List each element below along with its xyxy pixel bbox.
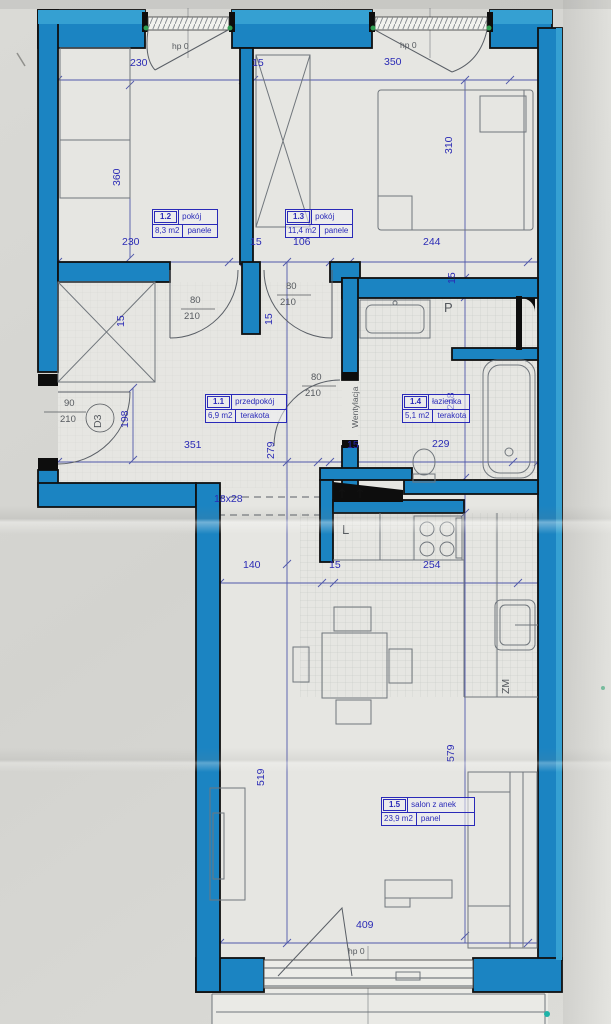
door-width-label: 80 [190, 296, 201, 306]
dimension-label: 409 [356, 920, 374, 931]
room-name: pokój [311, 210, 352, 224]
room-name: przedpokój [231, 395, 286, 409]
dimension-label: 229 [432, 439, 450, 450]
dimension-text-layer: 23015350hp 0hp 0360310230151062441515158… [0, 0, 611, 1024]
room-number: 1.3 [287, 211, 310, 223]
dimension-label: 351 [184, 440, 202, 451]
ventilation-label: Wentylacja [351, 387, 360, 428]
dimension-label: 230 [130, 58, 148, 69]
sink-label: ZM [501, 679, 512, 694]
room-label-1-1: 1.1przedpokój 6,9 m2terakota [205, 394, 287, 423]
room-floor: terakota [432, 410, 469, 422]
room-number: 1.4 [404, 396, 427, 408]
dimension-label: 198 [120, 410, 131, 428]
dimension-label: 350 [384, 57, 402, 68]
room-area: 8,3 m2 [153, 225, 182, 237]
room-label-1-3: 1.3pokój 11,4 m2panele [285, 209, 353, 238]
room-area: 23,9 m2 [382, 813, 416, 825]
room-label-1-2: 1.2pokój 8,3 m2panele [152, 209, 218, 238]
room-name: łazienka [428, 395, 469, 409]
dimension-label: 140 [243, 560, 261, 571]
dimension-label: 15 [252, 58, 264, 69]
floor-plan-photo: 23015350hp 0hp 0360310230151062441515158… [0, 0, 611, 1024]
door-symbol-label: D3 [93, 415, 104, 428]
room-floor: panele [319, 225, 352, 237]
room-number: 1.5 [383, 799, 406, 811]
dimension-label: 579 [446, 744, 457, 762]
dimension-label: 15 [329, 560, 341, 571]
room-name: pokój [178, 210, 217, 224]
entry-door-width-label: 90 [64, 399, 75, 409]
washing-machine-label: P [444, 301, 453, 314]
door-width-label: 80 [286, 282, 297, 292]
room-floor: panele [182, 225, 217, 237]
dimension-label: 15 [116, 315, 127, 327]
door-width-label: 80 [311, 373, 322, 383]
dimension-label: 360 [112, 168, 123, 186]
dimension-label: 254 [423, 560, 441, 571]
dimension-label: 519 [256, 768, 267, 786]
door-height-label: 210 [184, 312, 200, 322]
room-area: 5,1 m2 [403, 410, 432, 422]
dimension-label: 15 [264, 313, 275, 325]
dimension-label: 244 [423, 237, 441, 248]
room-number: 1.1 [207, 396, 230, 408]
fridge-label: L [342, 523, 349, 536]
room-area: 11,4 m2 [286, 225, 319, 237]
door-height-label: 210 [280, 298, 296, 308]
room-name: salon z anek [407, 798, 474, 812]
dimension-label: 279 [266, 441, 277, 459]
dimension-label: 15 [347, 440, 359, 451]
room-label-1-5: 1.5salon z anek 23,9 m2panel [381, 797, 475, 826]
room-area: 6,9 m2 [206, 410, 235, 422]
dimension-label: 230 [122, 237, 140, 248]
window-sill-height-label: hp 0 [172, 42, 189, 51]
dimension-label: 15 [250, 237, 262, 248]
window-sill-height-label: hp 0 [348, 947, 365, 956]
dimension-label: 106 [293, 237, 311, 248]
room-number: 1.2 [154, 211, 177, 223]
room-floor: panel [416, 813, 474, 825]
entry-door-height-label: 210 [60, 415, 76, 425]
dimension-label: 15 [447, 272, 458, 284]
room-label-1-4: 1.4łazienka 5,1 m2terakota [402, 394, 470, 423]
window-sill-height-label: hp 0 [400, 41, 417, 50]
door-height-label: 210 [305, 389, 321, 399]
dimension-label: 310 [444, 136, 455, 154]
room-floor: terakota [235, 410, 286, 422]
step-dimension-label: 18x28 [214, 494, 243, 505]
